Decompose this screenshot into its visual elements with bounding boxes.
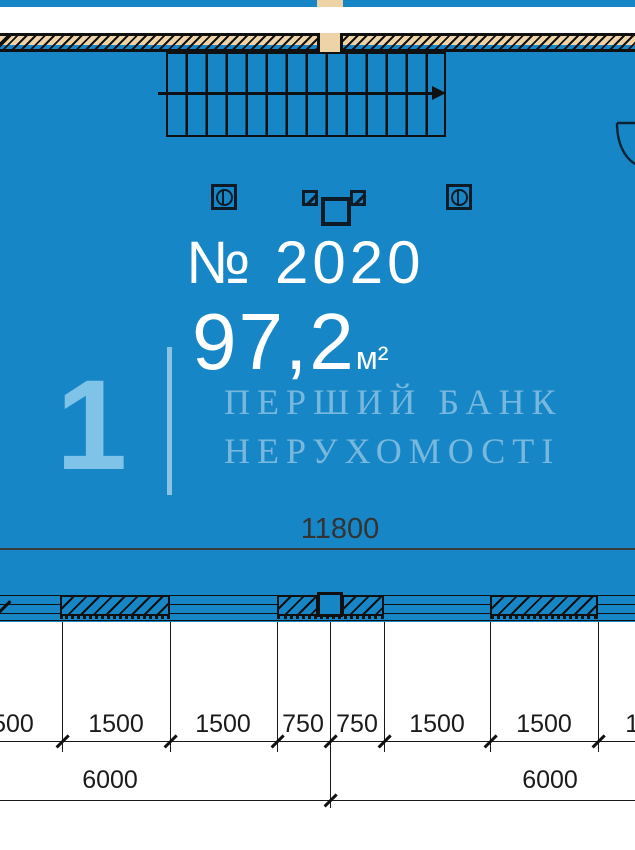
wall-pier xyxy=(342,595,384,616)
dimension-label: 1500 xyxy=(195,710,251,739)
unit-area-unit: м² xyxy=(356,340,389,376)
chimney-corner-icon-left xyxy=(302,190,318,206)
watermark-line-1: ПЕРШИЙ БАНК xyxy=(224,381,563,423)
chimney-shaft-icon xyxy=(321,197,351,226)
dimension-label: 1500 xyxy=(0,710,34,739)
extension-line xyxy=(598,622,599,752)
wall-pier xyxy=(277,595,318,616)
unit-area: 97,2м² xyxy=(192,296,388,388)
top-wall-door-opening xyxy=(317,33,343,52)
extension-line xyxy=(490,622,491,752)
watermark-line-2: НЕРУХОМОСТІ xyxy=(224,430,560,472)
extension-line xyxy=(170,622,171,752)
vent-shaft-icon-right xyxy=(446,184,472,210)
unit-number: № 2020 xyxy=(186,228,425,297)
extension-line-center xyxy=(330,622,331,808)
floor-plan-canvas: № 2020 97,2м² 1 ПЕРШИЙ БАНК НЕРУХОМОСТІ … xyxy=(0,0,635,850)
dimension-label: 1500 xyxy=(625,710,635,739)
divider-bar xyxy=(167,347,172,495)
vent-circle-icon xyxy=(451,189,468,206)
stair-walk-line xyxy=(158,92,434,95)
dimension-label: 1500 xyxy=(88,710,144,739)
stair-direction-arrow-icon xyxy=(432,86,446,100)
pier-insulation-dots xyxy=(60,616,170,619)
column xyxy=(317,592,343,617)
unit-area-value: 97,2 xyxy=(192,297,356,386)
door-swing-icon xyxy=(600,114,635,170)
extension-line xyxy=(384,622,385,752)
dimension-label: 750 xyxy=(336,710,378,739)
staircase xyxy=(166,52,446,137)
extension-line xyxy=(62,622,63,752)
upper-plan-strip-opening xyxy=(317,0,343,7)
dimension-total-width: 11800 xyxy=(0,513,635,546)
dimension-label: 6000 xyxy=(522,766,578,795)
dimension-label: 6000 xyxy=(82,766,138,795)
dimension-label: 1500 xyxy=(516,710,572,739)
dimension-label: 750 xyxy=(282,710,324,739)
dimension-line-row1 xyxy=(0,741,635,742)
dimension-total-line xyxy=(0,548,635,550)
dimension-line-row2 xyxy=(0,800,635,801)
chimney-corner-icon-right xyxy=(350,190,366,206)
wall-pier xyxy=(60,595,170,616)
dimension-label: 1500 xyxy=(409,710,465,739)
floor-index-number: 1 xyxy=(56,362,127,490)
vent-shaft-icon-left xyxy=(211,184,237,210)
pier-insulation-dots xyxy=(490,616,598,619)
wall-pier xyxy=(490,595,598,616)
window-line xyxy=(0,620,635,621)
extension-line xyxy=(277,622,278,752)
vent-circle-icon xyxy=(216,189,233,206)
